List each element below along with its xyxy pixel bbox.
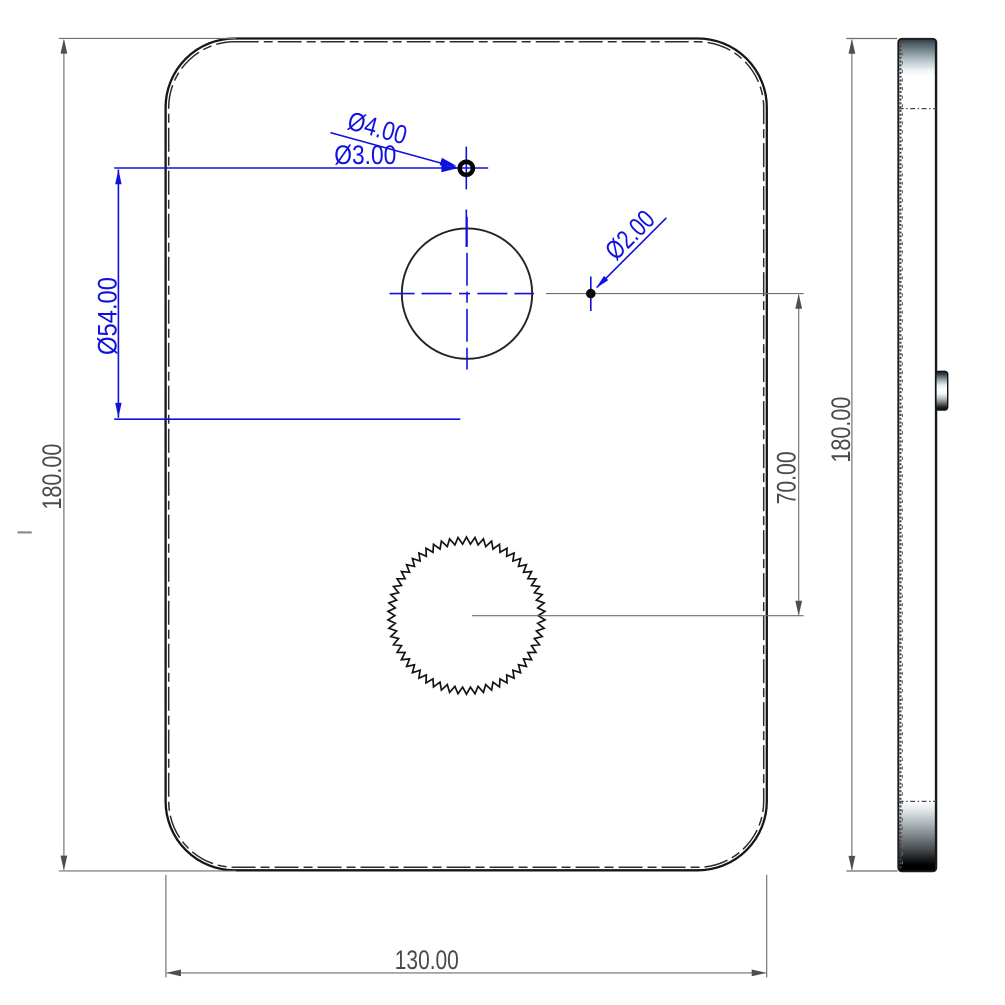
svg-text:130.00: 130.00 [395, 945, 459, 975]
svg-text:180.00: 180.00 [826, 397, 856, 463]
svg-text:70.00: 70.00 [771, 451, 801, 504]
svg-text:180.00: 180.00 [37, 444, 67, 510]
svg-text:Ø54.00: Ø54.00 [93, 277, 123, 355]
